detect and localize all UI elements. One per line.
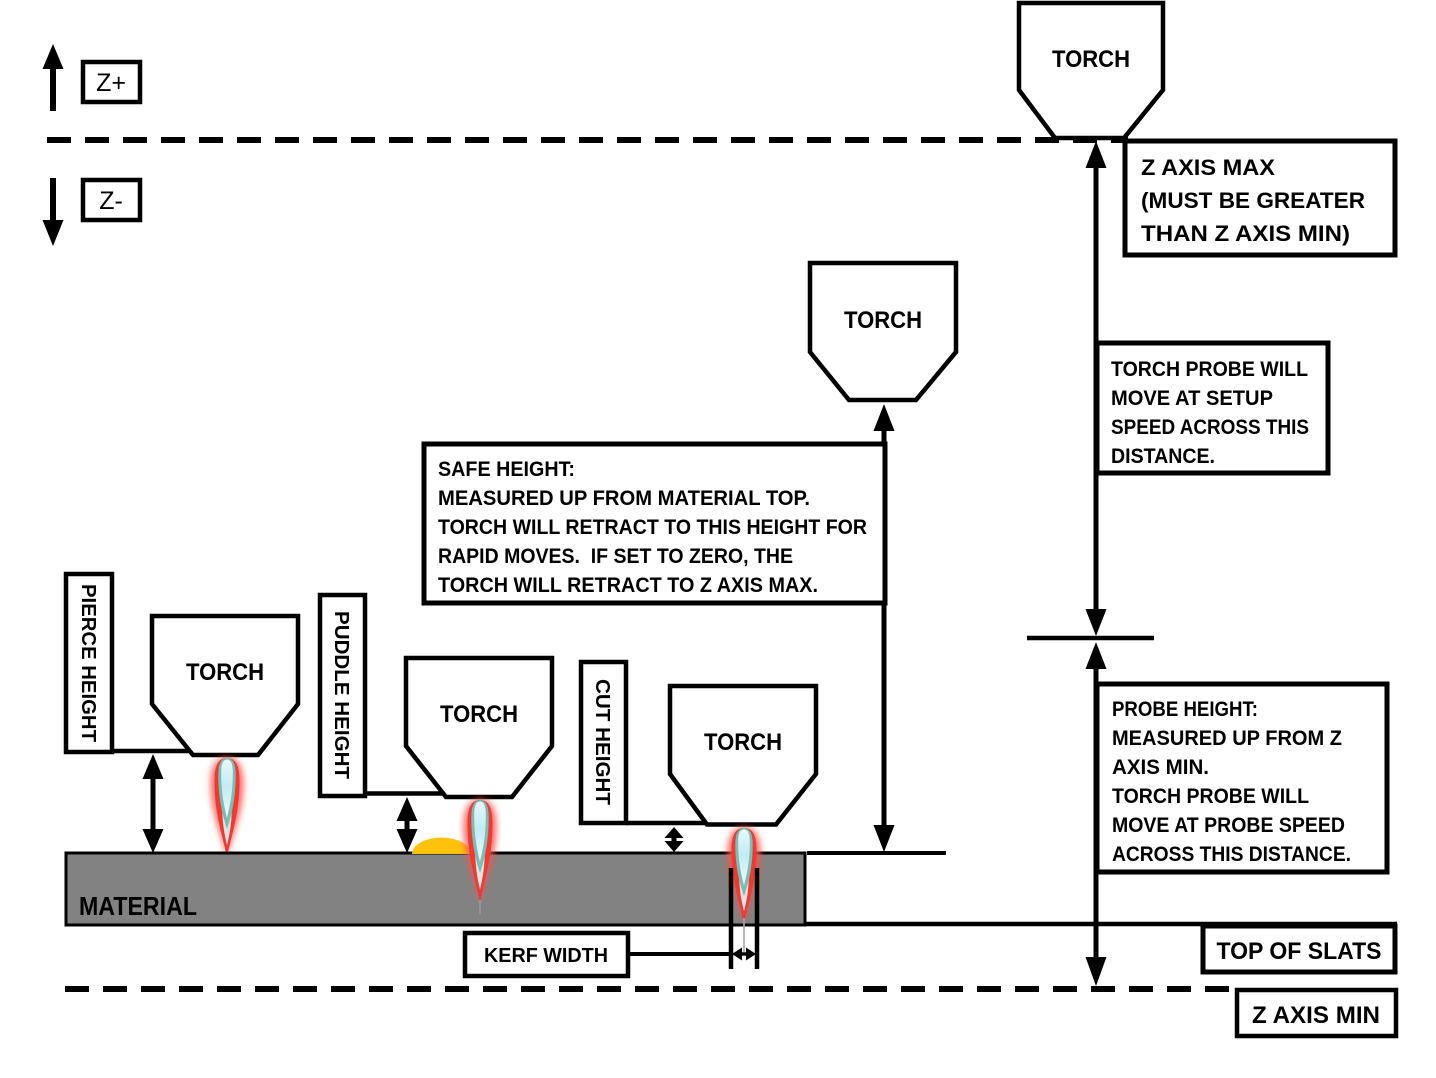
svg-text:Z+: Z+ — [96, 69, 126, 97]
svg-text:TORCH: TORCH — [704, 729, 782, 756]
svg-text:PROBE HEIGHT:: PROBE HEIGHT: — [1112, 698, 1258, 721]
svg-text:TORCH: TORCH — [440, 701, 518, 728]
svg-text:SPEED ACROSS THIS: SPEED ACROSS THIS — [1111, 416, 1309, 439]
svg-text:TOP OF SLATS: TOP OF SLATS — [1217, 938, 1382, 965]
svg-text:DISTANCE.: DISTANCE. — [1111, 445, 1215, 468]
svg-text:MEASURED UP FROM Z: MEASURED UP FROM Z — [1112, 727, 1342, 750]
svg-text:TORCH WILL RETRACT TO Z AXIS M: TORCH WILL RETRACT TO Z AXIS MAX. — [438, 574, 818, 597]
svg-text:TORCH: TORCH — [844, 307, 922, 334]
svg-text:MATERIAL: MATERIAL — [79, 891, 197, 921]
svg-text:CUT HEIGHT: CUT HEIGHT — [591, 679, 613, 805]
svg-text:ACROSS THIS DISTANCE.: ACROSS THIS DISTANCE. — [1112, 843, 1351, 866]
svg-text:MOVE AT PROBE SPEED: MOVE AT PROBE SPEED — [1112, 814, 1345, 837]
svg-text:MEASURED UP FROM MATERIAL TOP.: MEASURED UP FROM MATERIAL TOP. — [438, 487, 810, 510]
svg-text:PIERCE HEIGHT: PIERCE HEIGHT — [77, 584, 99, 742]
svg-text:TORCH: TORCH — [186, 659, 264, 686]
svg-text:SAFE HEIGHT:: SAFE HEIGHT: — [438, 458, 575, 481]
svg-text:TORCH PROBE WILL: TORCH PROBE WILL — [1111, 358, 1308, 381]
svg-text:Z AXIS MIN: Z AXIS MIN — [1252, 1002, 1380, 1029]
svg-text:RAPID MOVES. IF SET TO ZERO,: RAPID MOVES. IF SET TO ZERO, THE — [438, 545, 793, 568]
svg-text:AXIS MIN.: AXIS MIN. — [1112, 756, 1209, 779]
svg-text:PUDDLE HEIGHT: PUDDLE HEIGHT — [330, 611, 352, 779]
svg-text:THAN Z AXIS MIN): THAN Z AXIS MIN) — [1141, 221, 1350, 246]
svg-text:TORCH WILL RETRACT TO THIS HEI: TORCH WILL RETRACT TO THIS HEIGHT FOR — [438, 516, 867, 539]
svg-text:Z AXIS MAX: Z AXIS MAX — [1141, 155, 1275, 180]
svg-text:KERF WIDTH: KERF WIDTH — [484, 945, 608, 967]
svg-text:MOVE AT SETUP: MOVE AT SETUP — [1111, 387, 1273, 410]
svg-text:(MUST BE GREATER: (MUST BE GREATER — [1141, 188, 1365, 213]
svg-text:TORCH: TORCH — [1052, 46, 1130, 73]
svg-text:TORCH PROBE WILL: TORCH PROBE WILL — [1112, 785, 1309, 808]
svg-text:Z-: Z- — [99, 187, 123, 215]
